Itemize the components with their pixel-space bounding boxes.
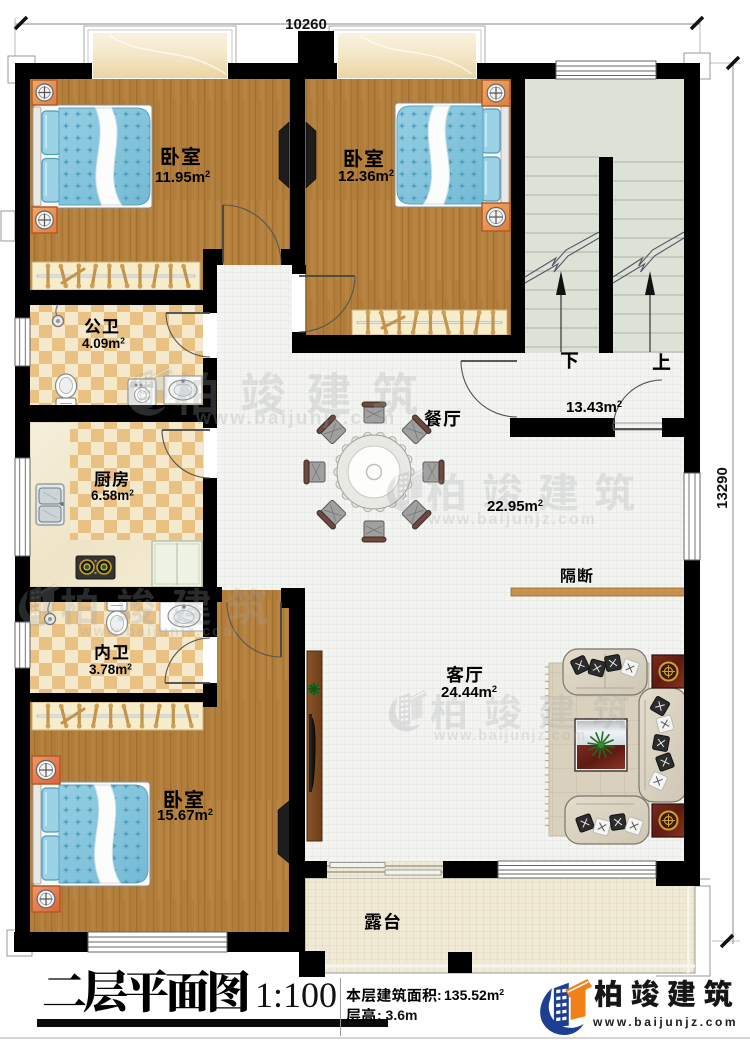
svg-text:13290: 13290: [714, 467, 731, 509]
svg-text::: :: [437, 987, 442, 1003]
svg-text:12.36m2: 12.36m2: [338, 168, 394, 185]
svg-text:22.95m2: 22.95m2: [487, 498, 543, 515]
svg-text:www.baijunjz.com: www.baijunjz.com: [79, 623, 238, 640]
svg-text:1:100: 1:100: [255, 975, 337, 1015]
svg-text:10260: 10260: [285, 16, 327, 33]
svg-text:3.78m2: 3.78m2: [89, 661, 132, 677]
svg-text:135.52m2: 135.52m2: [444, 987, 504, 1003]
svg-text:13.43m2: 13.43m2: [566, 399, 622, 416]
svg-text:: 3.6m: : 3.6m: [377, 1007, 417, 1023]
svg-text:4.09m2: 4.09m2: [82, 335, 125, 351]
svg-text:11.95m2: 11.95m2: [155, 169, 210, 186]
svg-text:www.baijunjz.com: www.baijunjz.com: [592, 1015, 738, 1029]
svg-text:24.44m2: 24.44m2: [441, 684, 497, 701]
svg-text:www.baijunjz.com: www.baijunjz.com: [433, 728, 587, 744]
svg-text:15.67m2: 15.67m2: [157, 807, 213, 824]
svg-text:6.58m2: 6.58m2: [91, 487, 134, 503]
svg-text:www.baijunjz.com: www.baijunjz.com: [195, 408, 396, 429]
